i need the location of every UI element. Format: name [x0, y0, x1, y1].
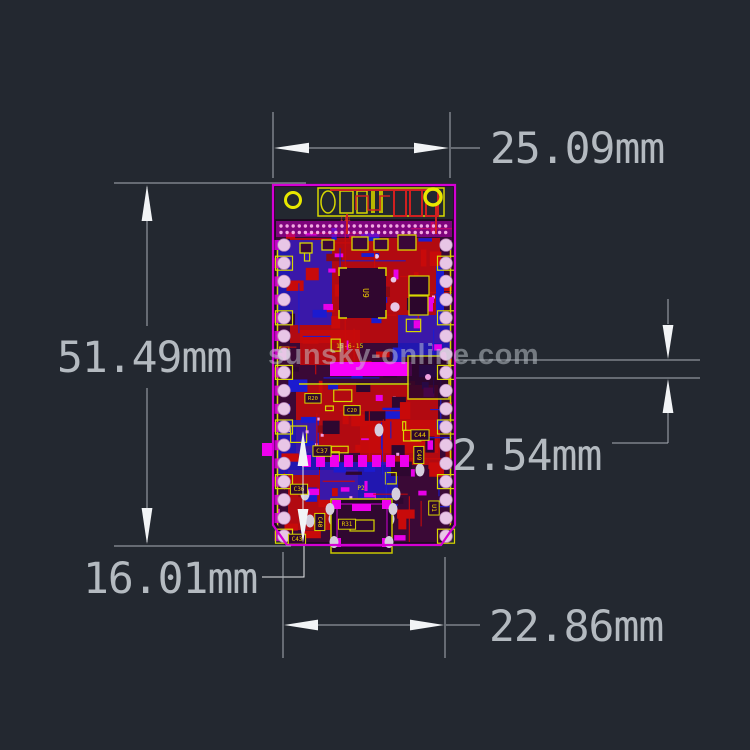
refdes-label-C40: C40	[315, 513, 325, 530]
dimension-bottom-width-label: 22.86mm	[489, 602, 663, 652]
refdes-label-C20: C20	[344, 406, 360, 416]
refdes-label-U9: U9	[361, 288, 370, 298]
svg-text:R20: R20	[308, 396, 318, 402]
pcb-dimension-drawing: U9C44C49C37C36C40C43R31U1P2R20C20 III 15…	[0, 0, 750, 750]
svg-text:U9: U9	[361, 288, 370, 298]
svg-text:C49: C49	[415, 450, 422, 461]
refdes-label-P2: P2	[357, 485, 365, 492]
cad-drawing-canvas: U9C44C49C37C36C40C43R31U1P2R20C20 III 15…	[0, 0, 750, 750]
refdes-label-U1: U1	[429, 501, 440, 515]
antenna-marking: III	[340, 216, 351, 223]
dimension-right-pitch: 2.54mm	[452, 299, 700, 481]
dimension-top-width-label: 25.09mm	[490, 124, 664, 174]
dimension-left-height-label: 51.49mm	[57, 333, 231, 383]
dimension-bottom-left-offset-label: 16.01mm	[83, 554, 257, 604]
svg-text:C37: C37	[316, 447, 328, 455]
refdes-label-C36: C36	[290, 484, 307, 494]
dimension-top-width: 25.09mm	[273, 112, 664, 178]
svg-text:R31: R31	[342, 521, 353, 528]
svg-text:C20: C20	[347, 408, 357, 414]
board-copper: U9C44C49C37C36C40C43R31U1P2R20C20	[262, 221, 485, 553]
refdes-label-C49: C49	[414, 446, 424, 463]
refdes-label-C44: C44	[411, 430, 429, 441]
svg-text:C43: C43	[292, 536, 303, 543]
svg-text:P2: P2	[357, 485, 365, 492]
dimension-bottom-width: 22.86mm	[283, 552, 663, 658]
refdes-label-R20: R20	[305, 394, 321, 404]
svg-text:C40: C40	[316, 517, 323, 528]
svg-text:U1: U1	[430, 504, 438, 512]
refdes-label-C37: C37	[313, 446, 331, 457]
side-button-pad	[262, 443, 273, 456]
watermark-text: sunsky-online.com	[268, 339, 539, 371]
svg-text:C44: C44	[414, 431, 426, 439]
refdes-label-R31: R31	[338, 519, 355, 529]
dimension-right-pitch-label: 2.54mm	[452, 431, 601, 481]
